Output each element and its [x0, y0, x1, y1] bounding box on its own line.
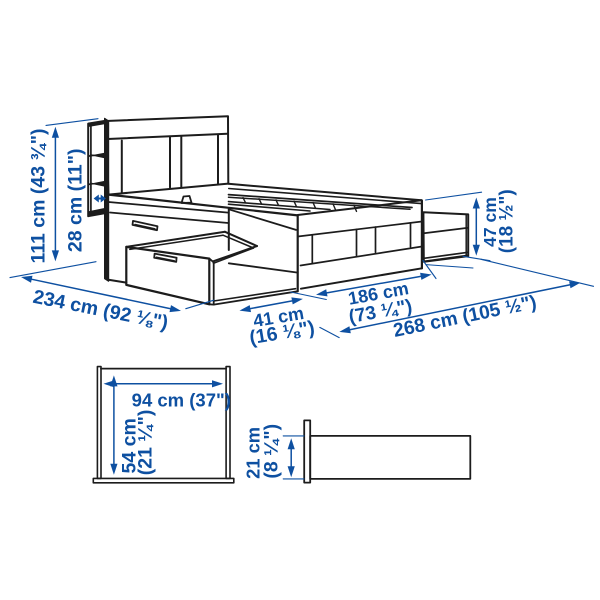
svg-text:94 cm (37"): 94 cm (37"): [132, 389, 231, 410]
svg-text:28 cm (11"): 28 cm (11"): [64, 149, 86, 253]
svg-text:(21 ¼"): (21 ¼"): [135, 410, 157, 476]
svg-text:234 cm (92 ⅛"): 234 cm (92 ⅛"): [31, 286, 170, 334]
svg-text:111 cm (43 ¾"): 111 cm (43 ¾"): [28, 128, 50, 263]
svg-text:(8 ¼"): (8 ¼"): [260, 424, 282, 479]
svg-text:268 cm (105 ½"): 268 cm (105 ½"): [392, 292, 539, 342]
svg-text:(18 ½"): (18 ½"): [497, 189, 518, 253]
